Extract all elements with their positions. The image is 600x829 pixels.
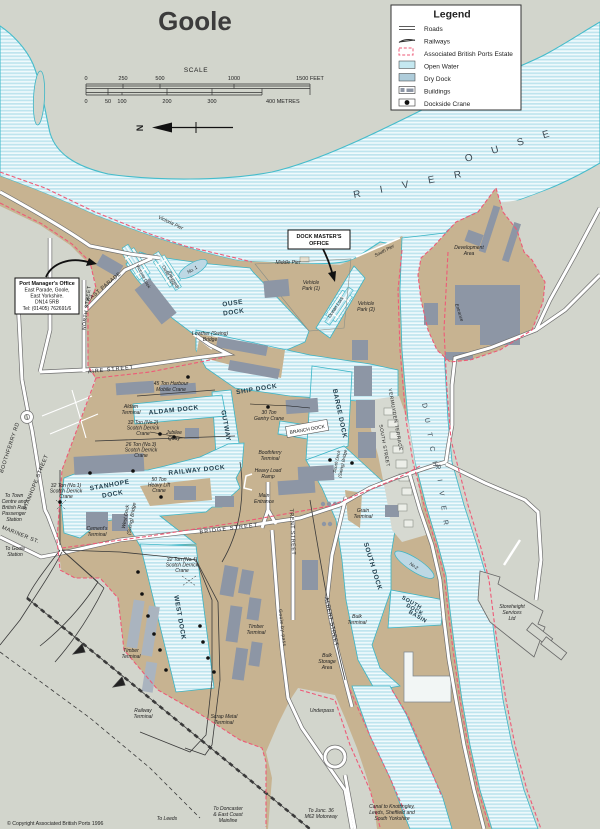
svg-text:Crane: Crane [175,568,189,574]
svg-text:Legend: Legend [433,9,470,21]
svg-text:To Leeds: To Leeds [157,816,178,822]
svg-text:Crane: Crane [59,494,73,500]
svg-text:Buildings: Buildings [424,89,451,96]
svg-text:Underpass: Underpass [310,708,335,714]
svg-text:DN14 5RB: DN14 5RB [35,300,60,306]
svg-text:Crane: Crane [136,431,150,437]
svg-text:Bridge: Bridge [203,337,218,343]
svg-text:50: 50 [105,99,111,105]
svg-text:Port Manager's Office: Port Manager's Office [19,281,75,287]
svg-text:200: 200 [162,99,171,105]
svg-text:OFFICE: OFFICE [309,241,329,247]
svg-text:Terminal: Terminal [134,714,154,720]
svg-text:400 METRES: 400 METRES [266,99,300,105]
svg-text:Associated British Ports Estat: Associated British Ports Estate [424,51,513,58]
svg-text:Mainline: Mainline [219,818,238,824]
svg-text:Goole: Goole [158,6,232,36]
svg-text:Gantry Crane: Gantry Crane [254,416,284,422]
svg-text:Railways: Railways [424,39,451,46]
svg-text:Tel: (01405) 762691/6: Tel: (01405) 762691/6 [23,306,72,312]
svg-text:Area: Area [321,665,333,671]
svg-text:© Copyright Associated British: © Copyright Associated British Ports 199… [7,820,103,827]
svg-text:Park (2): Park (2) [357,307,375,313]
svg-text:0: 0 [84,99,87,105]
svg-text:Terminal: Terminal [122,410,142,416]
svg-text:Ltd: Ltd [509,616,516,622]
svg-text:300: 300 [207,99,216,105]
svg-text:Mobile Crane: Mobile Crane [156,387,186,393]
svg-text:Crane: Crane [134,453,148,459]
svg-text:South Yorkshire: South Yorkshire [374,816,409,822]
svg-text:SCALE: SCALE [184,67,208,74]
svg-text:Station: Station [7,552,23,558]
svg-text:Dry Dock: Dry Dock [424,76,451,83]
svg-text:Terminal: Terminal [122,654,142,660]
svg-text:Station: Station [6,517,22,523]
svg-text:Crane: Crane [152,488,166,494]
svg-text:Terminal: Terminal [261,456,281,462]
svg-text:Park (1): Park (1) [302,286,320,292]
svg-text:500: 500 [155,76,164,82]
svg-text:Ramp: Ramp [261,474,275,480]
svg-text:Open Water: Open Water [424,64,460,71]
svg-text:Area: Area [463,251,475,257]
svg-text:Dockside Crane: Dockside Crane [424,101,471,108]
svg-text:DOCK MASTER'S: DOCK MASTER'S [296,234,341,240]
svg-text:Entrance: Entrance [254,499,274,505]
svg-text:250: 250 [118,76,127,82]
svg-text:1000: 1000 [228,76,240,82]
svg-text:M62 Motorway: M62 Motorway [305,814,338,820]
svg-text:Terminal: Terminal [88,532,108,538]
svg-text:Middle Pier: Middle Pier [275,260,300,266]
svg-text:100: 100 [117,99,126,105]
svg-text:0: 0 [84,76,87,82]
svg-text:Terminal: Terminal [247,630,267,636]
svg-text:N: N [135,125,145,132]
svg-text:1500 FEET: 1500 FEET [296,76,324,82]
svg-text:Roads: Roads [424,26,444,33]
svg-text:Terminal: Terminal [348,620,368,626]
svg-text:Terminal: Terminal [215,720,235,726]
svg-text:Terminal: Terminal [354,514,374,520]
